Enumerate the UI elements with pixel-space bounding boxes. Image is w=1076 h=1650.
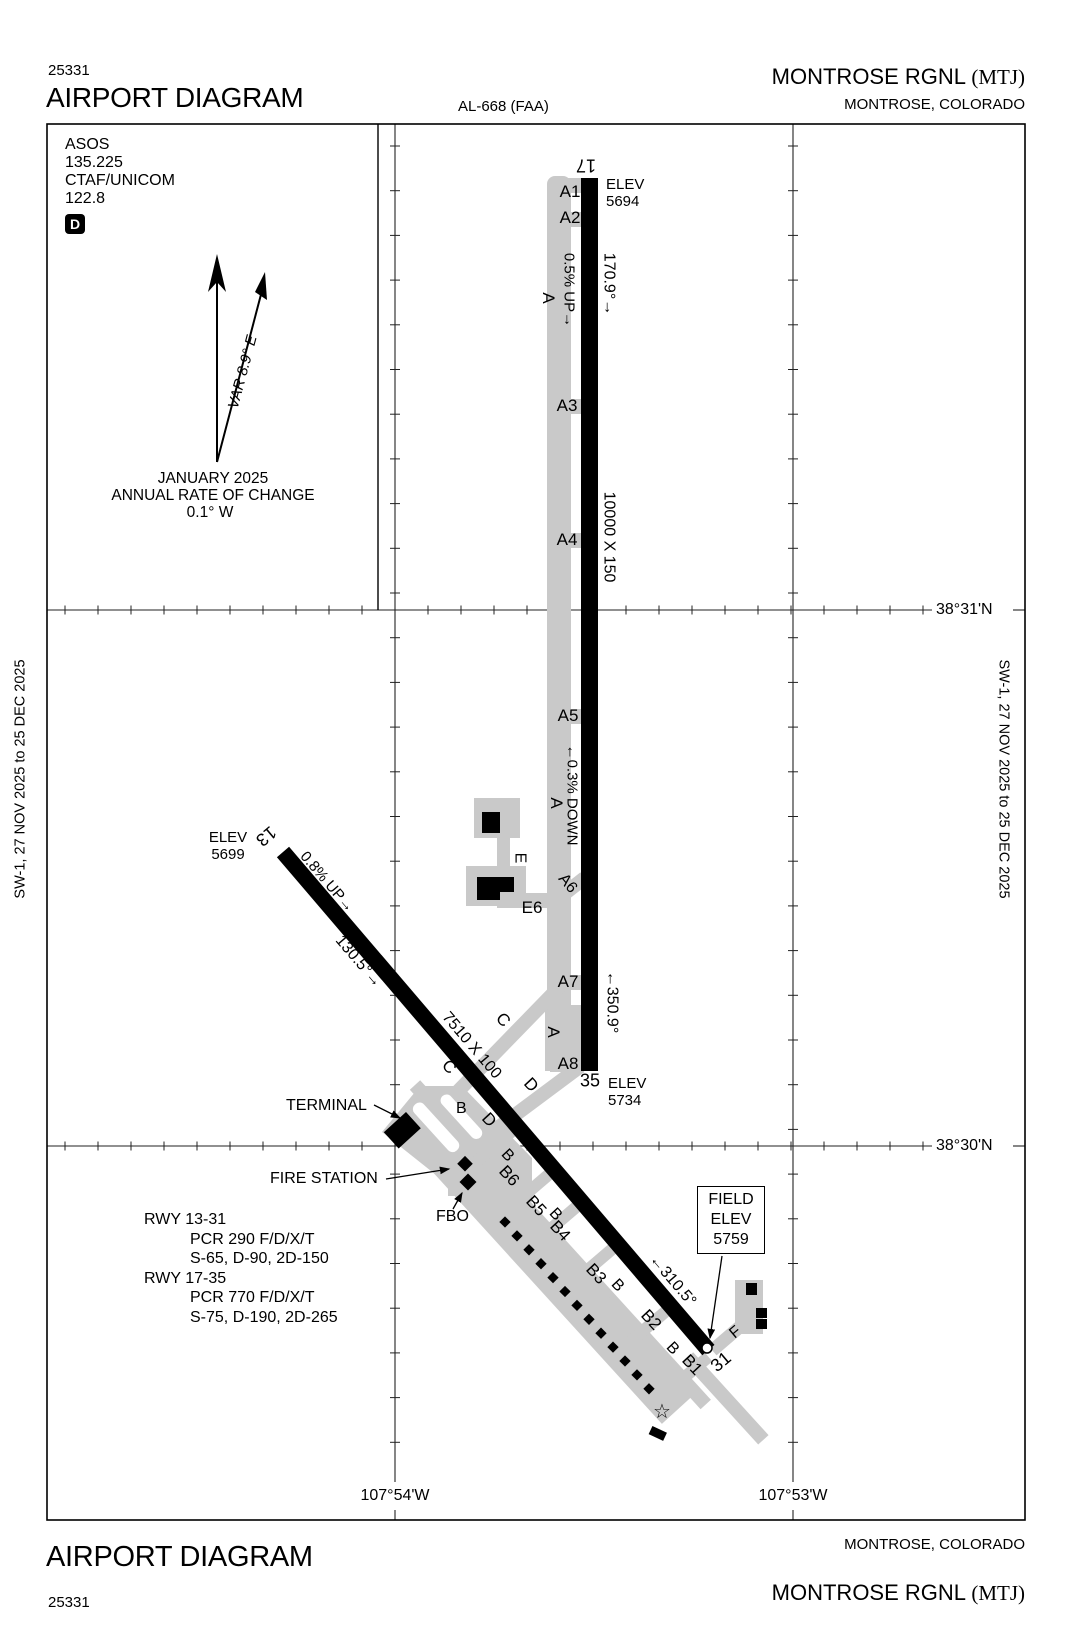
asos-frequency: 135.225 (65, 154, 123, 173)
small-building-south (649, 1426, 667, 1441)
twy-a1-label: A1 (560, 182, 581, 202)
d-symbol-icon: D (65, 214, 85, 234)
margin-note-right: SW-1, 27 NOV 2025 to 25 DEC 2025 (995, 659, 1012, 898)
airport-city: MONTROSE, COLORADO (844, 96, 1025, 113)
runway-1735-dimensions: 10000 X 150 (599, 492, 618, 583)
footer-city: MONTROSE, COLORADO (844, 1536, 1025, 1553)
twy-e6-label: E6 (522, 898, 543, 918)
field-elev-value: 5759 (704, 1230, 758, 1250)
runway-data-block: RWY 13-31 PCR 290 F/D/X/T S-65, D-90, 2D… (144, 1210, 338, 1327)
runway-35-heading: ←350.9° (602, 971, 621, 1033)
rwy-17-35-pcr: PCR 770 F/D/X/T (190, 1288, 338, 1308)
airport-diagram-page: 25331 AIRPORT DIAGRAM AL-668 (FAA) MONTR… (0, 0, 1076, 1650)
twy-a-label-mid: A (546, 797, 566, 808)
asos-label: ASOS (65, 136, 109, 155)
airport-name: MONTROSE RGNL (772, 64, 966, 89)
elev-word: ELEV (608, 1075, 646, 1092)
rwy-17-35-title: RWY 17-35 (144, 1269, 338, 1289)
twy-a7-label: A7 (558, 972, 579, 992)
runway-31-threshold-circle (702, 1343, 712, 1353)
magvar-date: JANUARY 2025 (158, 470, 269, 488)
elev-value: 5694 (606, 193, 644, 210)
footer-chart-number: 25331 (48, 1594, 90, 1611)
field-elev-line2: ELEV (704, 1210, 758, 1230)
terminal-leader (374, 1105, 400, 1118)
twy-a8-label: A8 (558, 1054, 579, 1074)
airport-title: MONTROSE RGNL (MTJ) (772, 64, 1025, 90)
magvar-rate-value: 0.1° W (187, 504, 234, 522)
footer-title: AIRPORT DIAGRAM (46, 1541, 313, 1575)
twy-a3-label: A3 (557, 396, 578, 416)
ctaf-label: CTAF/UNICOM (65, 172, 175, 191)
runway-35-elev: ELEV 5734 (608, 1075, 646, 1110)
airport-id: (MTJ) (971, 65, 1025, 89)
page-title: AIRPORT DIAGRAM (46, 82, 303, 114)
twy-a2-label: A2 (560, 208, 581, 228)
twy-a-label-north: A (538, 292, 558, 303)
terminal-label: TERMINAL (286, 1097, 367, 1116)
rwy-13-31-title: RWY 13-31 (144, 1210, 338, 1230)
ne-hangar-1 (746, 1283, 757, 1295)
margin-note-left: SW-1, 27 NOV 2025 to 25 DEC 2025 (13, 659, 30, 898)
runway-13-elev: ELEV 5699 (202, 829, 254, 864)
runway-17-number: 17 (576, 155, 596, 176)
elev-value: 5734 (608, 1092, 646, 1109)
footer-airport-title: MONTROSE RGNL (MTJ) (772, 1580, 1025, 1606)
runway-1735-slope-south: ←0.3% DOWN (563, 745, 580, 846)
elev-word: ELEV (202, 829, 254, 846)
variation-arrowhead (255, 272, 267, 300)
runway-17-heading: 170.9°→ (599, 253, 618, 315)
ctaf-frequency: 122.8 (65, 190, 105, 209)
magvar-rate-label: ANNUAL RATE OF CHANGE (111, 487, 314, 505)
runway-35-number: 35 (580, 1071, 600, 1092)
twy-a-label-south: A (543, 1026, 563, 1037)
lat-label-bottom: 38°30'N (936, 1137, 993, 1156)
twy-a4-label: A4 (557, 530, 578, 550)
fire-station-label: FIRE STATION (270, 1170, 378, 1189)
runway-17-elev: ELEV 5694 (606, 176, 644, 211)
runway-17-35 (581, 178, 598, 1071)
elev-value: 5699 (202, 846, 254, 863)
al-number: AL-668 (FAA) (458, 98, 549, 115)
rwy-13-31-pcr: PCR 290 F/D/X/T (190, 1230, 338, 1250)
lon-label-right: 107°53'W (758, 1487, 827, 1506)
twy-b-label-1: B (456, 1100, 467, 1119)
fbo-label: FBO (436, 1208, 469, 1227)
lat-label-top: 38°31'N (936, 601, 993, 620)
twy-a5-label: A5 (558, 706, 579, 726)
airport-diagram-graphics (0, 0, 1076, 1650)
footer-airport-id: (MTJ) (971, 1581, 1025, 1605)
field-elev-leader (710, 1256, 722, 1338)
twy-e-label: E (510, 853, 529, 864)
star-symbol-icon: ☆ (653, 1401, 671, 1424)
ne-hangar-2 (756, 1308, 767, 1318)
lon-label-left: 107°54'W (360, 1487, 429, 1506)
ne-hangar-3 (756, 1319, 767, 1329)
building-e-north (482, 812, 500, 833)
rwy-17-35-weights: S-75, D-190, 2D-265 (190, 1308, 338, 1328)
runway-1735-slope-north: 0.5% UP→ (560, 253, 577, 327)
footer-airport-name: MONTROSE RGNL (772, 1580, 966, 1605)
chart-number: 25331 (48, 62, 90, 79)
elev-word: ELEV (606, 176, 644, 193)
field-elev-line1: FIELD (704, 1190, 758, 1210)
rwy-13-31-weights: S-65, D-90, 2D-150 (190, 1249, 338, 1269)
field-elev-box: FIELD ELEV 5759 (697, 1186, 765, 1254)
